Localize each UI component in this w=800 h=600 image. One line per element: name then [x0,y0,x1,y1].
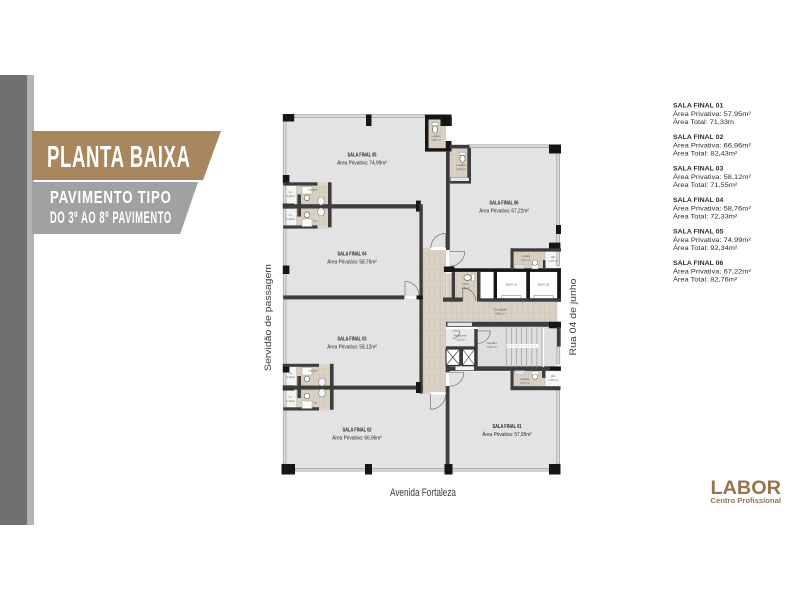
svg-text:Área Total: 71,33m: Área Total: 71,33m [673,117,734,126]
svg-text:4,17 m²: 4,17 m² [520,381,530,385]
svg-text:4,12m²: 4,12m² [286,375,295,379]
svg-text:SALA FINAL 05: SALA FINAL 05 [673,229,724,236]
svg-text:5,50 m²: 5,50 m² [487,345,497,349]
svg-text:Área Total: 72,33m²: Área Total: 72,33m² [673,212,737,221]
svg-text:Área Privativa: 66,96m²: Área Privativa: 66,96m² [332,435,382,442]
svg-text:ELEV 01: ELEV 01 [506,283,517,287]
svg-text:1,15 m²: 1,15 m² [548,378,558,382]
svg-text:Servidão de passagem: Servidão de passagem [263,264,274,371]
svg-text:Área Total: 92,34m²: Área Total: 92,34m² [673,243,737,252]
svg-text:Área Total: 71,55m²: Área Total: 71,55m² [673,180,737,189]
svg-text:SALA FINAL 02: SALA FINAL 02 [343,428,372,434]
svg-text:ELEV 02: ELEV 02 [538,283,549,287]
svg-text:SALA FINAL 02: SALA FINAL 02 [673,134,724,141]
svg-text:4,17 m²: 4,17 m² [521,258,531,262]
svg-text:Centro Profissional: Centro Profissional [711,496,782,505]
svg-text:Área Privativa: 74,99m²: Área Privativa: 74,99m² [673,235,751,244]
svg-text:SALA FINAL 03: SALA FINAL 03 [338,337,368,343]
svg-text:Área Privativa: 74,99m²: Área Privativa: 74,99m² [337,160,387,167]
svg-text:Área Total: 82,76m²: Área Total: 82,76m² [673,275,737,284]
svg-text:1,13m²: 1,13m² [286,217,295,221]
svg-text:4,12m²: 4,12m² [286,194,295,198]
svg-text:SALA FINAL 06: SALA FINAL 06 [673,260,724,267]
svg-text:Área Privativa: 58,76m²: Área Privativa: 58,76m² [327,259,377,266]
svg-text:Área Privativa: 67,22m²: Área Privativa: 67,22m² [673,266,751,275]
svg-text:Rua 04 de junho: Rua 04 de junho [568,279,579,356]
svg-text:Área Privativa: 58,12m²: Área Privativa: 58,12m² [327,344,377,351]
svg-text:SALA FINAL 04: SALA FINAL 04 [673,197,724,204]
svg-text:Área Privativa: 57,95m²: Área Privativa: 57,95m² [482,431,532,438]
svg-text:1,13m²: 1,13m² [286,399,295,403]
svg-text:Área Privativa: 58,76m²: Área Privativa: 58,76m² [673,203,751,212]
svg-text:1,13 m²: 1,13 m² [455,338,465,342]
svg-text:SALA FINAL 01: SALA FINAL 01 [673,103,724,110]
svg-text:Lavabo: Lavabo [308,188,318,192]
svg-text:SALA FINAL 03: SALA FINAL 03 [673,166,724,173]
svg-text:Área Total: 82,43m²: Área Total: 82,43m² [673,149,737,158]
svg-text:Área Privativa: 58,12m²: Área Privativa: 58,12m² [673,172,751,181]
svg-text:Avenida Fortaleza: Avenida Fortaleza [390,487,457,499]
svg-text:Área Privativa: 57,95m²: Área Privativa: 57,95m² [673,109,751,118]
svg-text:1,5 m²: 1,5 m² [462,286,470,290]
svg-text:Área Privativa: 66,96m²: Área Privativa: 66,96m² [673,140,751,149]
svg-text:A.t.: A.t. [314,219,318,223]
svg-text:1,15 m²: 1,15 m² [548,259,558,263]
svg-text:4,25 m²: 4,25 m² [456,167,466,171]
svg-text:SALA FINAL 06: SALA FINAL 06 [490,201,520,207]
svg-text:4,35 m²: 4,35 m² [495,312,505,316]
svg-text:SALA FINAL 04: SALA FINAL 04 [338,252,368,258]
svg-text:A.t.: A.t. [314,401,318,405]
svg-text:1,65 m²: 1,65 m² [431,138,441,142]
svg-text:Área Privativa: 67,22m²: Área Privativa: 67,22m² [479,208,529,215]
svg-text:Lavabo: Lavabo [308,369,318,373]
svg-text:SALA FINAL 05: SALA FINAL 05 [348,153,378,159]
svg-text:SALA FINAL 01: SALA FINAL 01 [493,424,523,430]
